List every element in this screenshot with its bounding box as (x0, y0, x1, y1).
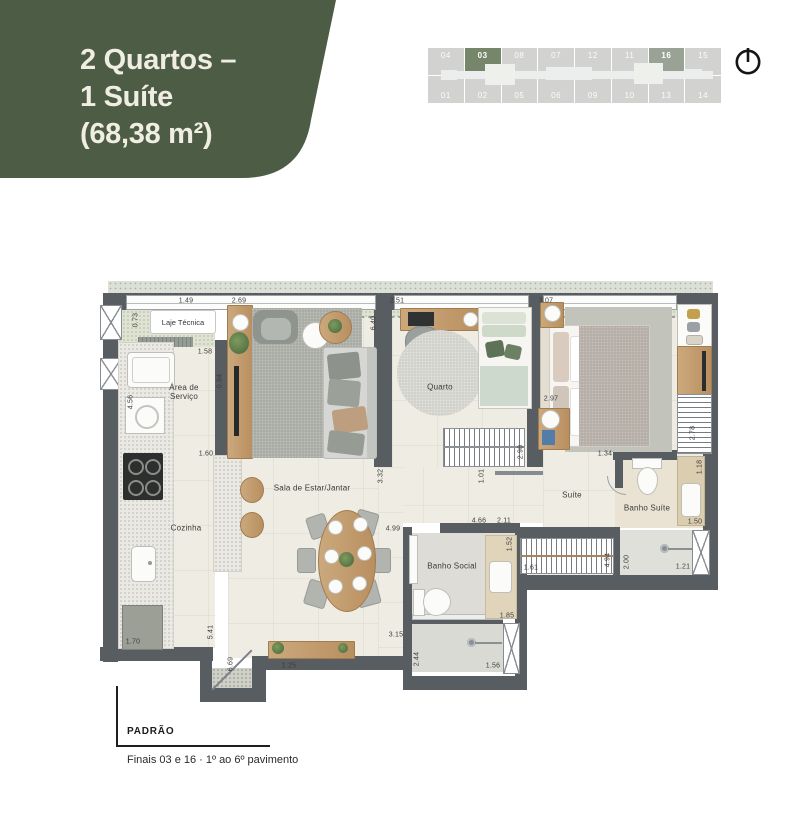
washer-drum (135, 405, 159, 429)
burner (128, 480, 144, 496)
dim-label: 2.98 (518, 445, 525, 459)
keyplan-core-block-right (634, 63, 663, 84)
title-line-3: (68,38 m²) (80, 116, 236, 153)
tv-console (227, 305, 253, 459)
dim-label: 2.69 (232, 298, 246, 305)
building-keyplan: 04 03 08 07 12 11 16 15 01 02 05 06 09 1… (428, 48, 721, 103)
burner (128, 459, 144, 475)
north-clock-icon (733, 46, 763, 76)
shower-arm (668, 548, 692, 550)
shoe-rack (677, 394, 712, 454)
dim-label: 2.00 (624, 555, 631, 569)
dim-label: 2.78 (690, 426, 697, 440)
dim-label: 2.11 (497, 518, 511, 525)
plant (328, 319, 342, 333)
tv-screen (234, 366, 239, 436)
table-lamp (541, 410, 560, 429)
place-setting (353, 517, 368, 532)
bed-pillow (553, 332, 569, 382)
stool (240, 512, 264, 538)
dim-label: 1.56 (486, 663, 500, 670)
plant (338, 643, 348, 653)
dim-label: 4.56 (128, 395, 135, 409)
single-bed (478, 307, 532, 409)
place-setting (324, 549, 339, 564)
dim-label: 3.07 (539, 298, 553, 305)
bed-pillow (482, 312, 526, 324)
keyplan-unit-14: 14 (685, 76, 721, 103)
plan-detail-note: Finais 03 e 16 · 1º ao 6º pavimento (127, 754, 298, 766)
dim-label: 2.97 (544, 396, 558, 403)
laje-tecnica-label: Laje Técnica (162, 318, 204, 327)
dim-label: 1.50 (688, 519, 702, 526)
dim-label: 1.49 (179, 298, 193, 305)
dim-label: 1.85 (500, 613, 514, 620)
dim-label: 1.70 (126, 639, 140, 646)
footer-bracket-horizontal (116, 745, 270, 747)
title-line-1: 2 Quartos – (80, 42, 236, 79)
wardrobe-rack (443, 428, 525, 467)
dim-label: 1.01 (479, 469, 486, 483)
dim-label: 4.66 (472, 518, 486, 525)
place-setting (352, 576, 367, 591)
floor-plan: Laje Técnica (100, 280, 720, 710)
room-label-servico: Área de Serviço (156, 383, 212, 401)
desk-lamp (463, 312, 478, 327)
wall-left (103, 293, 118, 662)
room-label-banho-social: Banho Social (427, 562, 477, 571)
banho-social-sink (489, 561, 512, 593)
place-setting (357, 546, 372, 561)
dim-label: 1.34 (598, 451, 612, 458)
door-leaf (495, 471, 543, 475)
bed-pillow (485, 340, 506, 359)
plant (229, 332, 249, 354)
sofa-pillow (327, 379, 361, 408)
dim-label: 1.58 (198, 349, 212, 356)
room-label-quarto: Quarto (427, 383, 453, 392)
wall-right-section-bottom (518, 575, 718, 590)
keyplan-core-middle (546, 67, 592, 80)
wall-closet-shower-divider (613, 527, 620, 575)
plan-type-label: PADRÃO (127, 726, 174, 737)
keyplan-core-block-left (485, 64, 515, 85)
dim-label: 1.61 (524, 565, 538, 572)
keyplan-core-tab-left (441, 70, 457, 80)
dim-label: 1.60 (199, 451, 213, 458)
wall-banho-social-bottom (403, 676, 527, 690)
title-line-2: 1 Suíte (80, 79, 236, 116)
keyplan-unit-09: 09 (575, 76, 611, 103)
shelf-unit (677, 304, 712, 348)
closet-rail (521, 555, 613, 557)
dining-chair (297, 548, 316, 573)
keyplan-row-bottom: 01 02 05 06 09 10 13 14 (428, 76, 721, 103)
stool (240, 477, 264, 503)
dim-label: 1.18 (697, 460, 704, 474)
dim-label: 0.84 (217, 374, 224, 388)
dim-label: 5.41 (208, 625, 215, 639)
laje-tecnica-label-box: Laje Técnica (150, 310, 216, 334)
dim-label: 0.73 (133, 313, 140, 327)
faucet (148, 561, 152, 565)
sofa (323, 347, 377, 459)
dim-label: 1.25 (282, 663, 296, 670)
page-title: 2 Quartos – 1 Suíte (68,38 m²) (80, 42, 236, 153)
burner (145, 480, 161, 496)
dim-label: 6.69 (228, 657, 235, 671)
room-label-cozinha: Cozinha (171, 524, 202, 533)
books (542, 430, 555, 445)
dim-label: 6.40 (371, 316, 378, 330)
storage-box (686, 335, 703, 345)
folded-clothes (687, 322, 700, 332)
armchair (253, 310, 298, 344)
folded-clothes (687, 309, 700, 319)
banho-suite-sink (681, 483, 701, 517)
dim-label: 2.44 (414, 652, 421, 666)
shaft-banho-social (503, 623, 520, 674)
bed-blanket (480, 366, 528, 406)
pocket-door (409, 535, 418, 584)
room-label-suite: Suíte (562, 491, 582, 500)
wall-closet-top (517, 527, 617, 538)
place-setting (328, 520, 343, 535)
laptop (408, 312, 434, 326)
wardrobe-rail (444, 446, 524, 448)
burner (145, 459, 161, 475)
wardrobe (677, 346, 712, 396)
shaft-banho-suite (692, 530, 710, 575)
dim-label: 3.32 (378, 469, 385, 483)
plant (272, 642, 284, 654)
place-setting (328, 579, 343, 594)
sofa-pillow (327, 351, 362, 380)
dim-label: 4.99 (386, 526, 400, 533)
bed-pillow (482, 325, 526, 337)
dim-label: 4.94 (605, 553, 612, 567)
table-lamp (544, 305, 561, 322)
round-rug (397, 330, 483, 416)
wall-banho-social-top (440, 523, 520, 533)
dim-label: 2.51 (390, 298, 404, 305)
duvet (579, 326, 649, 446)
kitchen-sink (131, 546, 156, 582)
dim-label: 1.21 (676, 564, 690, 571)
shower-arm (475, 642, 502, 644)
room-label-sala: Sala de Estar/Jantar (274, 484, 350, 493)
sofa-back (367, 348, 376, 458)
kitchen-peninsula (213, 455, 242, 572)
wardrobe-handle (702, 351, 706, 391)
dim-label: 1.52 (507, 537, 514, 551)
armchair-seat (261, 318, 291, 340)
laundry-sink-basin (132, 357, 170, 383)
vent-window-laje (100, 305, 122, 340)
bed-pillow (504, 343, 523, 360)
keyplan-core-tab-right (685, 69, 702, 78)
keyplan-unit-06: 06 (538, 76, 574, 103)
decor-tray (232, 314, 249, 331)
keyplan-unit-01: 01 (428, 76, 464, 103)
plant (339, 552, 354, 567)
room-label-banho-suite: Banho Suíte (624, 504, 670, 513)
dim-label: 3.15 (389, 632, 403, 639)
stove (123, 453, 163, 500)
sofa-pillow (327, 430, 365, 456)
footer-bracket-vertical (116, 686, 118, 747)
